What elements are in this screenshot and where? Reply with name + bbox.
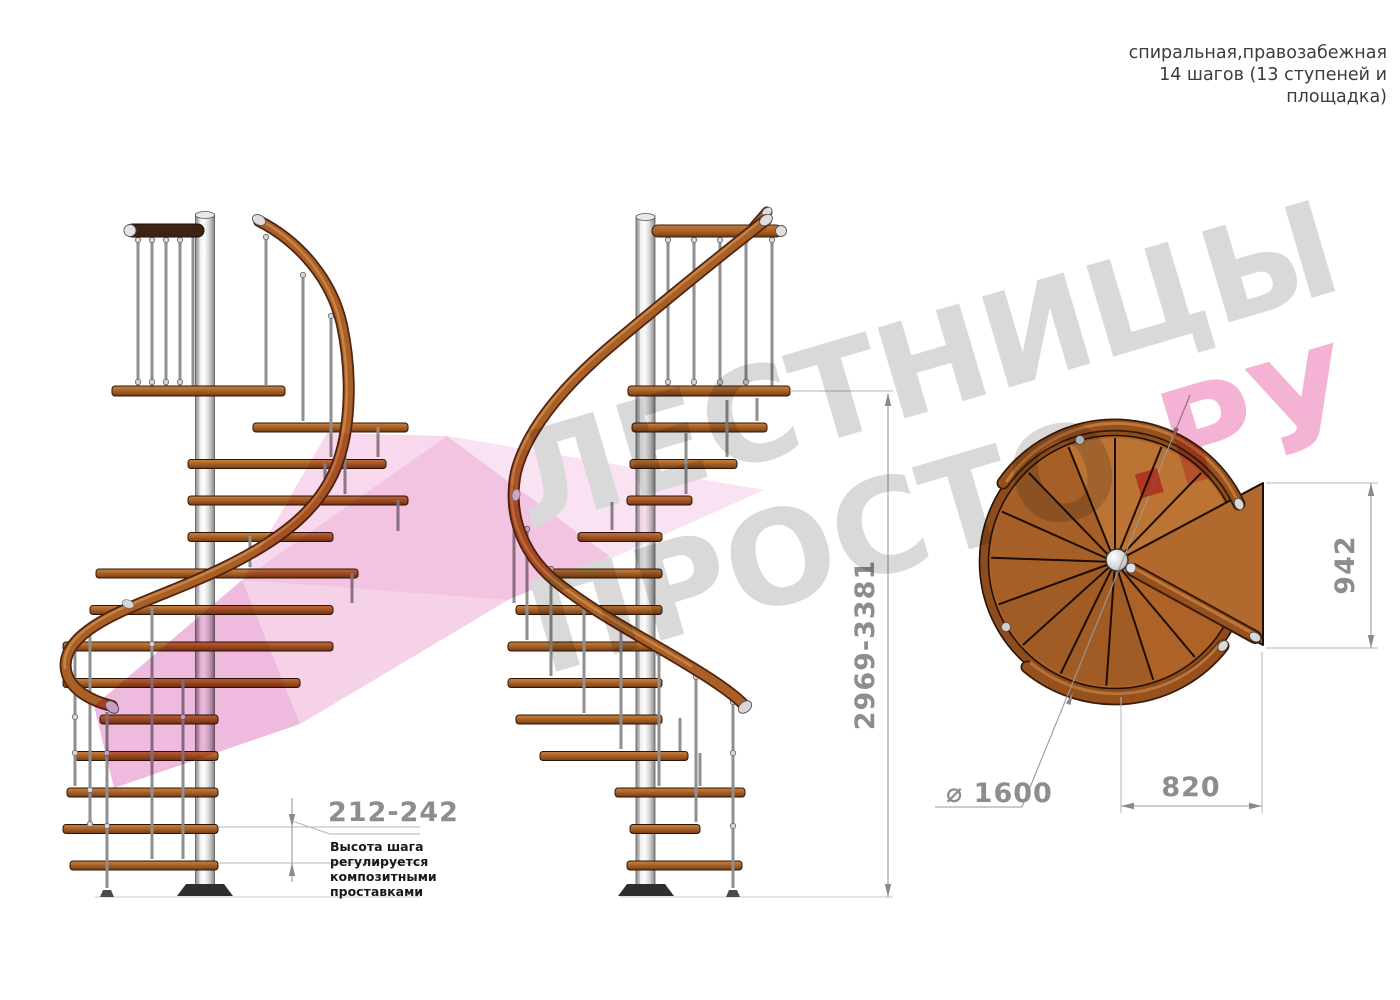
tread xyxy=(70,861,218,870)
rail-ball-joint xyxy=(1126,563,1136,573)
tread xyxy=(63,825,218,834)
step-height-value: 212-242 xyxy=(328,797,459,828)
step-height-note-1: Высота шага xyxy=(330,839,424,854)
pole-base-flange xyxy=(618,884,674,896)
baluster-foot xyxy=(726,890,740,897)
pole-top-cap xyxy=(636,214,655,221)
dimension-arrow xyxy=(885,884,891,897)
header-line1: спиральная,правозабежная xyxy=(1129,43,1387,63)
drawing-page: 212-242 Высота шага регулируется компози… xyxy=(0,0,1400,1000)
pole-highlight xyxy=(200,216,205,888)
step-height-note-4: проставками xyxy=(330,884,423,899)
pole-top-cap xyxy=(196,212,215,219)
rail-end-cap xyxy=(776,226,787,237)
top-rail-dark xyxy=(126,224,204,237)
plan-height-value: 942 xyxy=(1330,535,1361,594)
rail-end-cap xyxy=(124,225,136,237)
tread xyxy=(627,861,742,870)
diameter-value: ⌀ 1600 xyxy=(946,778,1053,809)
dimension-arrow xyxy=(1249,803,1262,809)
header-line2: 14 шагов (13 ступеней и xyxy=(1159,65,1387,85)
baluster-foot xyxy=(100,890,114,897)
step-height-dimension: 212-242 Высота шага регулируется компози… xyxy=(218,797,459,899)
tread xyxy=(516,715,662,724)
tread xyxy=(615,788,745,797)
step-height-note-3: композитными xyxy=(330,869,437,884)
dimension-arrow xyxy=(1121,803,1134,809)
step-height-note-2: регулируется xyxy=(330,854,428,869)
dimension-arrow xyxy=(289,814,295,827)
platform-railing xyxy=(124,224,204,386)
tread xyxy=(630,825,700,834)
spiral-staircase-drawing: 212-242 Высота шага регулируется компози… xyxy=(0,0,1400,1000)
header: спиральная,правозабежная 14 шагов (13 ст… xyxy=(1129,43,1387,107)
rim-baluster-dot xyxy=(1002,623,1011,632)
dimension-arrow xyxy=(1368,635,1374,648)
center-pole-hub xyxy=(1106,549,1128,571)
tread xyxy=(540,752,688,761)
landing-width-value: 820 xyxy=(1161,772,1220,803)
dimension-arrow xyxy=(289,863,295,876)
pole-base-flange xyxy=(177,884,233,896)
diameter-symbol: ⌀ xyxy=(946,778,974,809)
header-line3: площадка) xyxy=(1286,87,1387,107)
platform-tread xyxy=(112,386,285,396)
dimension-arrow xyxy=(1368,483,1374,496)
